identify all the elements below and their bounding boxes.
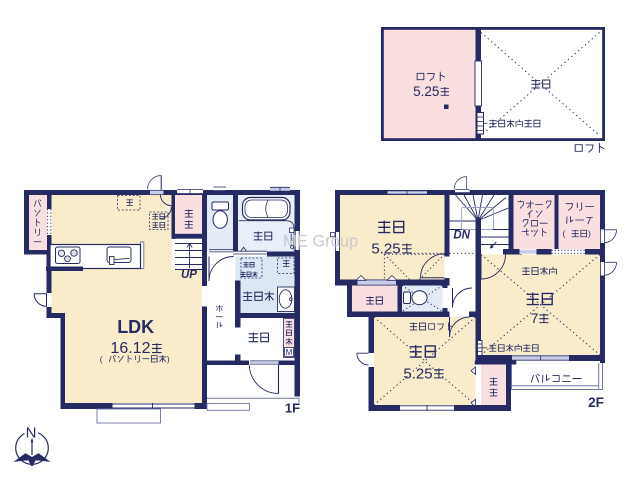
svg-text:5.25: 5.25 (413, 84, 439, 99)
svg-text:7: 7 (531, 310, 539, 326)
svg-text:1F: 1F (285, 401, 300, 416)
svg-text:M: M (286, 348, 293, 357)
svg-text:16.12: 16.12 (110, 340, 150, 357)
svg-text:(: ( (100, 354, 103, 364)
svg-text:N: N (26, 425, 37, 442)
svg-text:ME Group: ME Group (283, 233, 358, 251)
svg-text:5.25: 5.25 (403, 365, 432, 382)
svg-text:2F: 2F (588, 395, 604, 410)
svg-text:UP: UP (181, 269, 197, 281)
svg-text:): ) (588, 229, 591, 239)
svg-text:DN: DN (453, 230, 470, 242)
svg-text:(: ( (563, 229, 566, 239)
svg-text:): ) (167, 354, 170, 364)
svg-text:5.25: 5.25 (371, 240, 400, 257)
svg-text:LDK: LDK (117, 317, 154, 337)
